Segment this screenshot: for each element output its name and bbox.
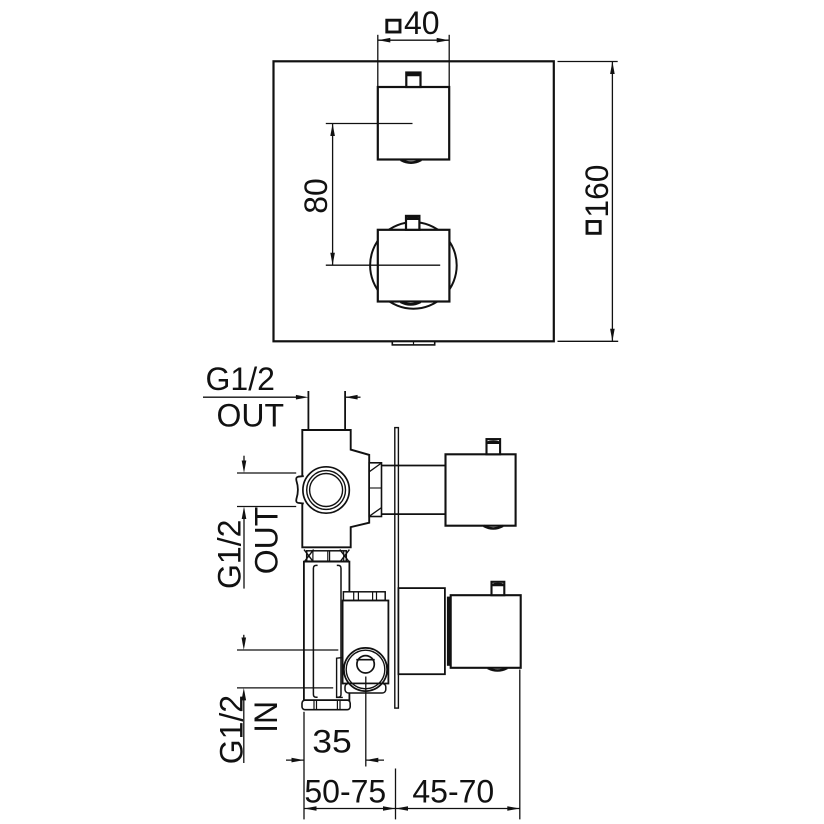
svg-text:45-70: 45-70 <box>412 773 494 809</box>
svg-text:160: 160 <box>579 165 615 218</box>
svg-text:OUT: OUT <box>217 397 285 433</box>
svg-text:G1/2: G1/2 <box>206 361 275 397</box>
svg-text:IN: IN <box>248 701 284 733</box>
svg-text:G1/2: G1/2 <box>211 520 247 589</box>
svg-text:40: 40 <box>404 5 440 41</box>
svg-text:80: 80 <box>298 178 334 214</box>
svg-text:35: 35 <box>312 724 352 760</box>
svg-text:50-75: 50-75 <box>304 773 386 809</box>
svg-text:OUT: OUT <box>249 507 285 575</box>
